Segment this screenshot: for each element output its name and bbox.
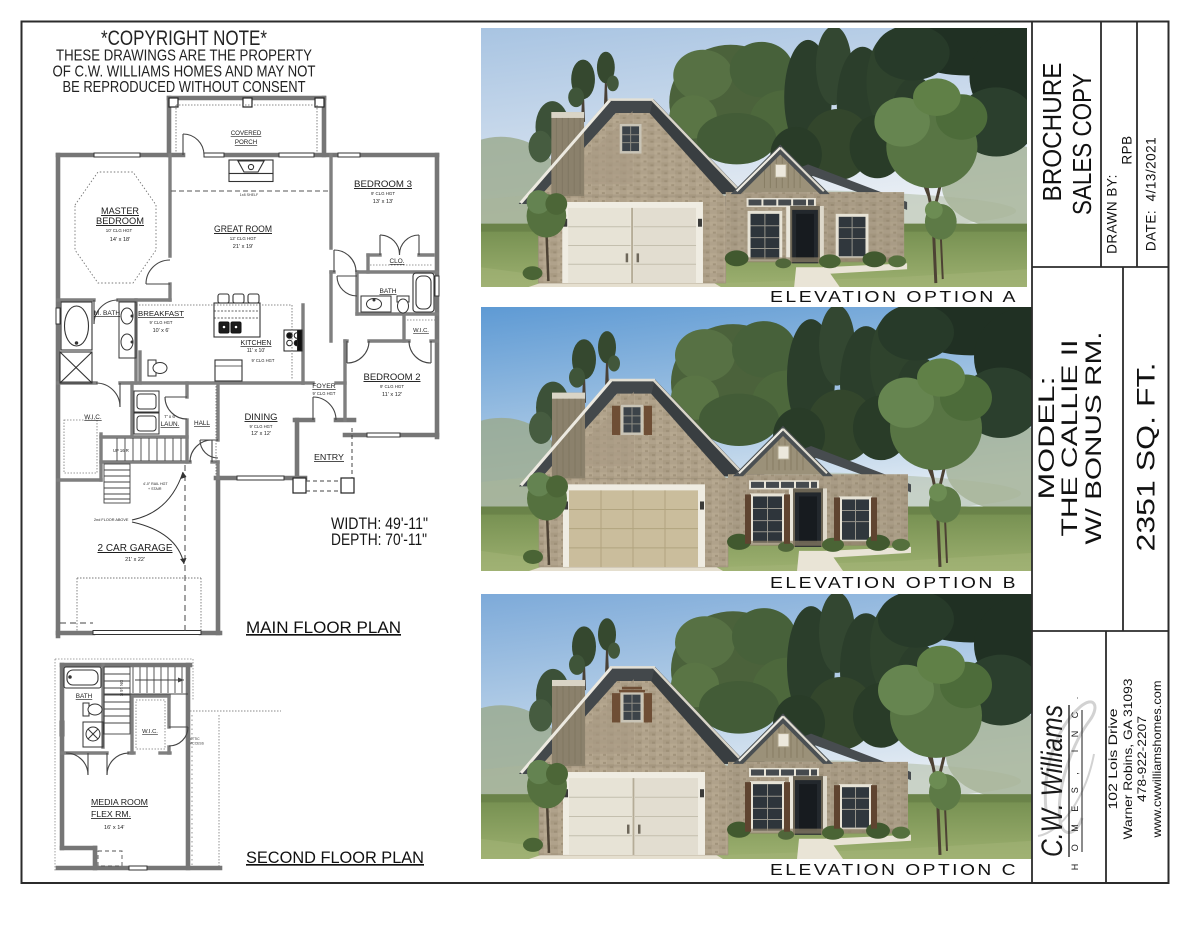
svg-text:102 Lois Drive: 102 Lois Drive bbox=[1106, 708, 1120, 809]
svg-text:SECOND FLOOR PLAN: SECOND FLOOR PLAN bbox=[246, 849, 424, 867]
svg-text:16' x 14': 16' x 14' bbox=[104, 825, 125, 831]
svg-text:21' x 22': 21' x 22' bbox=[125, 557, 145, 563]
svg-text:H O M E S , I N C .: H O M E S , I N C . bbox=[1070, 692, 1080, 871]
svg-text:OF C.W. WILLIAMS HOMES AND MAY: OF C.W. WILLIAMS HOMES AND MAY NOT bbox=[53, 64, 317, 81]
svg-text:9' CLG HGT: 9' CLG HGT bbox=[150, 320, 173, 325]
svg-text:MEDIA ROOM: MEDIA ROOM bbox=[91, 798, 148, 807]
svg-text:HALL: HALL bbox=[194, 420, 210, 427]
svg-text:DEPTH: 70'-11": DEPTH: 70'-11" bbox=[331, 531, 427, 549]
svg-text:RPB: RPB bbox=[1120, 135, 1135, 164]
svg-text:9' CLG HGT: 9' CLG HGT bbox=[380, 384, 404, 389]
svg-text:9' CLG HGT: 9' CLG HGT bbox=[371, 191, 395, 196]
svg-text:21' x 19': 21' x 19' bbox=[233, 244, 254, 250]
svg-text:MAIN FLOOR PLAN: MAIN FLOOR PLAN bbox=[246, 619, 401, 637]
svg-text:SALES COPY: SALES COPY bbox=[1067, 73, 1097, 215]
svg-text:ELEVATION OPTION A: ELEVATION OPTION A bbox=[770, 289, 1018, 306]
svg-text:DRAWN BY:: DRAWN BY: bbox=[1105, 174, 1120, 254]
svg-text:ENTRY: ENTRY bbox=[314, 453, 345, 462]
svg-text:Warner Robins, GA 31093: Warner Robins, GA 31093 bbox=[1121, 678, 1135, 839]
svg-text:THE CALLIE II: THE CALLIE II bbox=[1057, 340, 1082, 537]
svg-text:UP 16 R: UP 16 R bbox=[113, 448, 129, 453]
svg-text:PORCH: PORCH bbox=[235, 139, 257, 146]
svg-text:12' x 12': 12' x 12' bbox=[251, 431, 271, 437]
svg-text:9' CLG HGT: 9' CLG HGT bbox=[313, 391, 336, 396]
svg-text:W/ BONUS RM.: W/ BONUS RM. bbox=[1081, 332, 1106, 545]
svg-text:DN 16 R: DN 16 R bbox=[119, 680, 124, 696]
svg-text:GREAT ROOM: GREAT ROOM bbox=[214, 224, 272, 235]
svg-text:BROCHURE: BROCHURE bbox=[1037, 63, 1067, 202]
svg-text:W.I.C.: W.I.C. bbox=[142, 729, 158, 735]
svg-text:FLEX RM.: FLEX RM. bbox=[91, 810, 131, 819]
svg-text:7' x 6': 7' x 6' bbox=[164, 414, 176, 419]
svg-text:2351 SQ. FT.: 2351 SQ. FT. bbox=[1133, 363, 1161, 552]
svg-text:DINING: DINING bbox=[245, 412, 278, 422]
svg-text:+ STAIR: + STAIR bbox=[148, 487, 162, 491]
svg-text:11' x 12': 11' x 12' bbox=[382, 392, 402, 398]
svg-text:KITCHEN: KITCHEN bbox=[241, 340, 272, 347]
svg-text:C.W. Williams: C.W. Williams bbox=[1036, 705, 1069, 857]
svg-text:BEDROOM: BEDROOM bbox=[96, 216, 144, 227]
svg-text:11' x 10': 11' x 10' bbox=[247, 348, 266, 354]
svg-text:ATTIC: ATTIC bbox=[190, 737, 200, 741]
svg-text:DATE: 4/13/2021: DATE: 4/13/2021 bbox=[1144, 137, 1159, 251]
svg-text:LAUN.: LAUN. bbox=[161, 421, 180, 428]
svg-text:9' CLG HGT: 9' CLG HGT bbox=[252, 358, 275, 363]
svg-text:COVERED: COVERED bbox=[231, 130, 262, 137]
svg-text:MODEL:: MODEL: bbox=[1034, 377, 1059, 500]
svg-text:13' x 13': 13' x 13' bbox=[373, 199, 394, 205]
svg-text:BE REPRODUCED WITHOUT CONSENT: BE REPRODUCED WITHOUT CONSENT bbox=[63, 79, 306, 96]
svg-text:12' CLG HGT: 12' CLG HGT bbox=[230, 236, 257, 241]
svg-text:2nd FLOOR ABOVE: 2nd FLOOR ABOVE bbox=[94, 518, 129, 522]
svg-text:www.cwwilliamshomes.com: www.cwwilliamshomes.com bbox=[1150, 680, 1164, 838]
svg-text:10' x 6': 10' x 6' bbox=[153, 328, 170, 334]
svg-text:CLO.: CLO. bbox=[390, 258, 405, 265]
svg-text:1x8 SHELF: 1x8 SHELF bbox=[240, 193, 259, 197]
svg-text:BATH: BATH bbox=[379, 288, 396, 295]
svg-text:10' CLG HGT: 10' CLG HGT bbox=[106, 228, 133, 233]
svg-text:BEDROOM 2: BEDROOM 2 bbox=[364, 372, 421, 383]
svg-text:BREAKFAST: BREAKFAST bbox=[138, 311, 185, 318]
svg-text:M. BATH: M. BATH bbox=[94, 310, 120, 317]
svg-text:THESE DRAWINGS ARE THE PROPERT: THESE DRAWINGS ARE THE PROPERTY bbox=[56, 48, 312, 65]
svg-text:FOYER: FOYER bbox=[312, 383, 336, 390]
svg-text:ELEVATION OPTION B: ELEVATION OPTION B bbox=[770, 575, 1018, 592]
svg-text:ELEVATION OPTION C: ELEVATION OPTION C bbox=[770, 862, 1018, 879]
svg-text:9' CLG HGT: 9' CLG HGT bbox=[250, 424, 273, 429]
svg-text:478-922-2207: 478-922-2207 bbox=[1135, 716, 1149, 802]
svg-text:14' x 18': 14' x 18' bbox=[110, 237, 131, 243]
svg-text:BATH: BATH bbox=[76, 693, 93, 700]
svg-text:BEDROOM 3: BEDROOM 3 bbox=[354, 179, 412, 190]
svg-text:W.I.C.: W.I.C. bbox=[413, 328, 429, 334]
svg-text:2 CAR GARAGE: 2 CAR GARAGE bbox=[98, 543, 173, 554]
svg-text:W.I.C.: W.I.C. bbox=[84, 414, 102, 421]
svg-text:4'-0" RAIL HGT: 4'-0" RAIL HGT bbox=[143, 482, 168, 486]
